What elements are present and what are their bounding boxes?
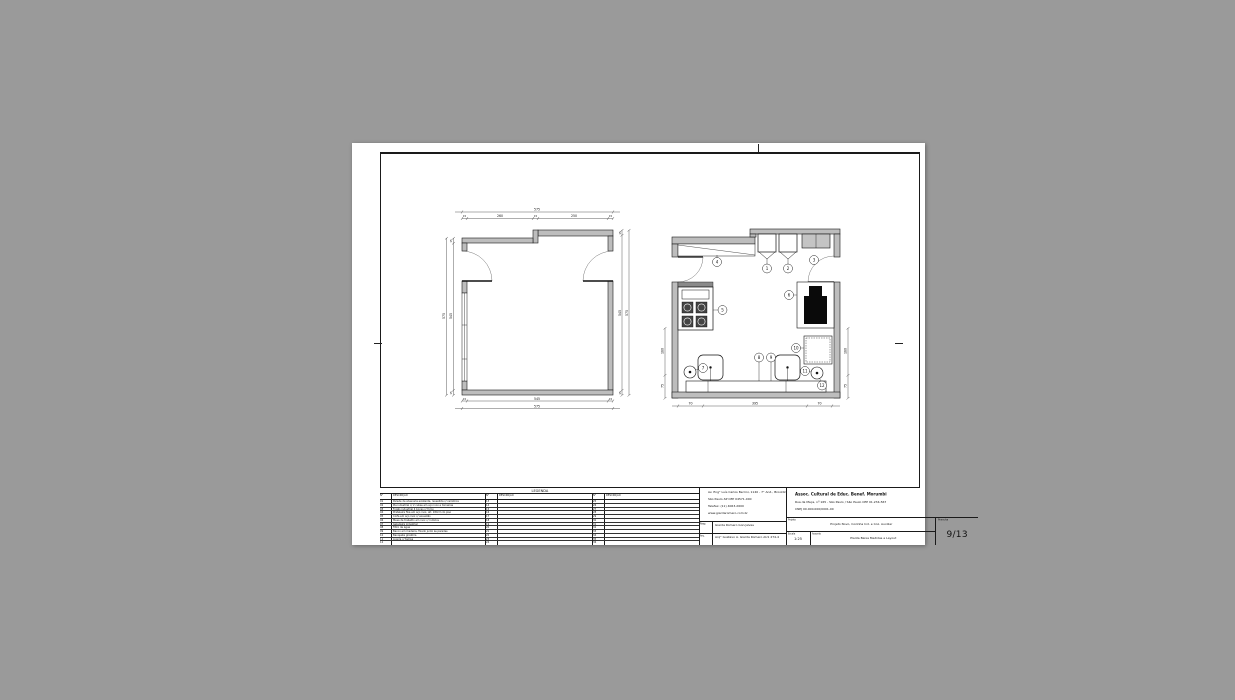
legend-row-desc: Fogão industrial 4 bocas c/ forno [393,508,485,511]
dim-label: 15 [618,391,622,395]
dim-label: 260 [497,214,503,218]
dim-label: 575 [625,310,629,316]
balloon: 10 [792,344,801,353]
balloon: 5 [718,306,727,315]
legend-rows: 01 Parede de alvenaria existente, revest… [380,500,485,545]
dim-label: 15 [534,214,538,218]
legend-group-3: N° DESCRIÇÃO 25 26 [593,494,699,545]
legend-row-no: 21 [486,530,497,533]
dim-label: 70 [817,402,821,406]
legend-row-desc: Lixeira c/ tampa [393,538,485,541]
svg-text:10: 10 [793,346,799,351]
balloon: 11 [801,367,810,376]
legend-row: 24 [486,541,591,545]
legend-col-no: N° [380,494,391,497]
legend-row-desc: Mesa de trabalho em inox c/ rodízios [393,519,485,522]
dim-label: 15 [609,214,613,218]
registry-label: Arq. [700,535,712,538]
balloon: 7 [699,364,708,373]
svg-text:3: 3 [813,258,816,263]
refrigerator [794,282,835,328]
legend-row-no: 27 [593,508,604,511]
address-line-2: São Paulo-SP CEP 04571-000 [708,498,786,501]
project-cell: Projeto Projeto Novo, Cozinha Ind. e Coz… [787,518,935,531]
dim-label: 15 [449,391,453,395]
walls [462,230,613,395]
legend-row-no: 03 [380,508,391,511]
dim-label: 545 [618,310,622,316]
svg-text:1: 1 [766,266,769,271]
title-block-rows: Projeto Projeto Novo, Cozinha Ind. e Coz… [787,517,978,545]
bench [686,381,826,392]
legend-row-no: 34 [593,534,604,537]
responsible-row: Resp. Giarda Romero Gonçalves [700,521,786,533]
client-block: Assoc. Cultural de Educ. Benef. Morumbi … [787,488,978,545]
legend-col-no: N° [593,494,604,497]
dim-label: 575 [442,313,446,319]
legend-row-no: 07 [380,523,391,526]
shelf [678,244,755,256]
sheet-number-label: Prancha [938,519,978,522]
scale-label: Escala [788,533,802,536]
legend-row-no: 13 [486,500,497,503]
legend-row-no: 10 [380,534,391,537]
legend-col-desc: DESCRIÇÃO [499,494,591,497]
legend-row-desc: Prateleira fixa em aço inox, alt. 180cm … [393,511,485,514]
subject-label: Assunto [812,533,830,536]
legend-row-no: 09 [380,530,391,533]
legend-row-no: 19 [486,523,497,526]
subject-cell: Assunto Planta Baixa Medidas e Layout [811,532,935,545]
balloon: 1 [763,264,772,273]
dim-label: 15 [463,397,467,401]
dim-label: 15 [609,397,613,401]
scale-title-row: Escala 1:25 Assunto Planta Baixa Medidas… [787,531,935,545]
legend-row-no: 16 [486,511,497,514]
project-label: Projeto [788,519,804,522]
legend-row-desc: Parede de alvenaria existente, revestida… [393,500,485,503]
balloon: 12 [818,381,827,390]
legend-rows: 13 14 15 [486,500,591,545]
legend-row-no: 17 [486,515,497,518]
svg-text:11: 11 [802,369,808,374]
balloon: 4 [713,258,722,267]
legend-body: N° DESCRIÇÃO 01 Parede de alvenaria exis… [380,494,699,545]
legend-row-no: 24 [486,541,497,544]
address-line-3: Telefax: (11) 4063-2600 [708,505,786,508]
legend-row-no: 35 [593,538,604,541]
balloon: 6 [785,291,794,300]
svg-text:5: 5 [721,308,724,313]
scale-cell: Escala 1:25 [787,532,811,545]
floor-plan-layout: 1 2 3 4 5 6 7 8 9 10 11 12 70 395 70 180… [658,224,856,414]
legend-row-no: 18 [486,519,497,522]
desktop-background: { "colors":{"background":"#9a9a9a","pape… [0,0,1235,700]
registry-row: Arq. Arq° Gustavo A. Giarda Romero AU1 2… [700,533,786,545]
drawing-sheet: 575 15 260 15 250 15 15 545 15 575 15 54… [352,143,925,545]
dim-label: 15 [449,239,453,243]
registry-value: Arq° Gustavo A. Giarda Romero AU1 274-4 [715,536,779,539]
subject-value: Planta Baixa Medidas e Layout [811,537,935,540]
doors [462,251,613,281]
floor-plan-measures: 575 15 260 15 250 15 15 545 15 575 15 54… [440,203,640,415]
svg-text:7: 7 [702,366,705,371]
svg-text:8: 8 [758,355,761,360]
dim-label: 70 [688,402,692,406]
svg-text:4: 4 [716,260,719,265]
dim-label: 250 [571,214,577,218]
fold-mark-top [758,144,759,152]
client-address: Rua da Maça, nº 165 - São Paulo / São Pa… [795,501,978,504]
dim-label: 180 [661,348,665,354]
scale-value: 1:25 [787,537,810,541]
legend-row-no: 12 [380,541,391,544]
legend-row-no: 15 [486,508,497,511]
legend-row-no: 31 [593,523,604,526]
legend-row-no: 06 [380,519,391,522]
legend-row-no: 04 [380,511,391,514]
side-table [801,336,833,364]
legend-group-2: N° DESCRIÇÃO 13 14 [486,494,592,545]
legend-row-desc: Geladeira industrial [393,523,485,526]
title-band: LEGENDA N° DESCRIÇÃO 01 Parede de alvena… [380,487,920,545]
legend-row: 12 [380,541,485,545]
legend-row-no: 20 [486,526,497,529]
legend-col-desc: DESCRIÇÃO [606,494,699,497]
legend-row-desc: Filtro de água [393,526,485,529]
legend-row-desc: Banco em madeira, fixado junto às parede… [393,530,485,533]
legend-row-no: 22 [486,534,497,537]
svg-text:6: 6 [788,293,791,298]
stove [678,282,718,330]
legend-row: 36 [593,541,699,545]
balloon: 8 [755,353,764,362]
sheet-number-cell: Prancha 9/13 [935,518,978,545]
legend-row-no: 05 [380,515,391,518]
project-value: Projeto Novo, Cozinha Ind. e Coz. Auxili… [787,523,935,526]
responsible-value: Giarda Romero Gonçalves [715,524,754,527]
double-sink [758,234,797,264]
legend-row-no: 02 [380,504,391,507]
dim-label: 15 [463,214,467,218]
legend-row-no: 32 [593,526,604,529]
balloon: 3 [810,256,819,265]
legend-row-no: 14 [486,504,497,507]
legend-row-no: 23 [486,538,497,541]
architect-address: Av. Eng° Luís Carlos Berrini, 1140 - 7° … [700,488,786,521]
legend-row-desc: Coifa em aço inox c/ exaustão [393,515,485,518]
cooktop [802,234,830,248]
legend-row-no: 01 [380,500,391,503]
legend-row-no: 30 [593,519,604,522]
dim-label: 575 [534,208,540,212]
client-info: Assoc. Cultural de Educ. Benef. Morumbi … [787,488,978,517]
client-name: Assoc. Cultural de Educ. Benef. Morumbi [795,492,978,497]
fold-mark-left [374,343,382,344]
dim-label: 575 [534,404,540,408]
sheet-number-value: 9/13 [936,525,978,545]
address-line-1: Av. Eng° Luís Carlos Berrini, 1140 - 7° … [708,491,786,494]
legend-col-desc: DESCRIÇÃO [393,494,485,497]
balloon: 2 [784,264,793,273]
responsible-label: Resp. [700,523,712,526]
dim-label: 395 [752,402,758,406]
legend-row-no: 28 [593,511,604,514]
dim-label: 15 [618,231,622,235]
legend-row-no: 29 [593,515,604,518]
legend-col-no: N° [486,494,497,497]
legend-table: LEGENDA N° DESCRIÇÃO 01 Parede de alvena… [380,488,700,545]
dim-label: 545 [449,313,453,319]
legend-row-no: 26 [593,504,604,507]
svg-text:12: 12 [819,383,825,388]
svg-text:2: 2 [787,266,790,271]
website: www.giardaromero.com.br [708,512,786,515]
fold-mark-right [895,343,903,344]
legend-title-text: LEGENDA [380,489,699,493]
svg-text:9: 9 [770,355,773,360]
architect-block: Av. Eng° Luís Carlos Berrini, 1140 - 7° … [700,488,787,545]
legend-row-desc: Banqueta giratória [393,534,485,537]
dim-label: 545 [534,397,540,401]
dim-label: 75 [844,384,848,388]
legend-row-desc: Pia industrial c/ 2 cubas em aço inox e … [393,504,485,507]
legend-row-no: 33 [593,530,604,533]
legend-row-no: 11 [380,538,391,541]
client-cnpj: CNPJ 00.000.000/0001-00 [795,508,978,511]
legend-row-no: 36 [593,541,604,544]
window [462,293,467,381]
dim-label: 180 [844,348,848,354]
legend-row-no: 25 [593,500,604,503]
legend-rows: 25 26 27 [593,500,699,545]
legend-row-no: 08 [380,526,391,529]
legend-group-1: N° DESCRIÇÃO 01 Parede de alvenaria exis… [380,494,486,545]
dim-label: 75 [661,384,665,388]
balloon: 9 [767,353,776,362]
